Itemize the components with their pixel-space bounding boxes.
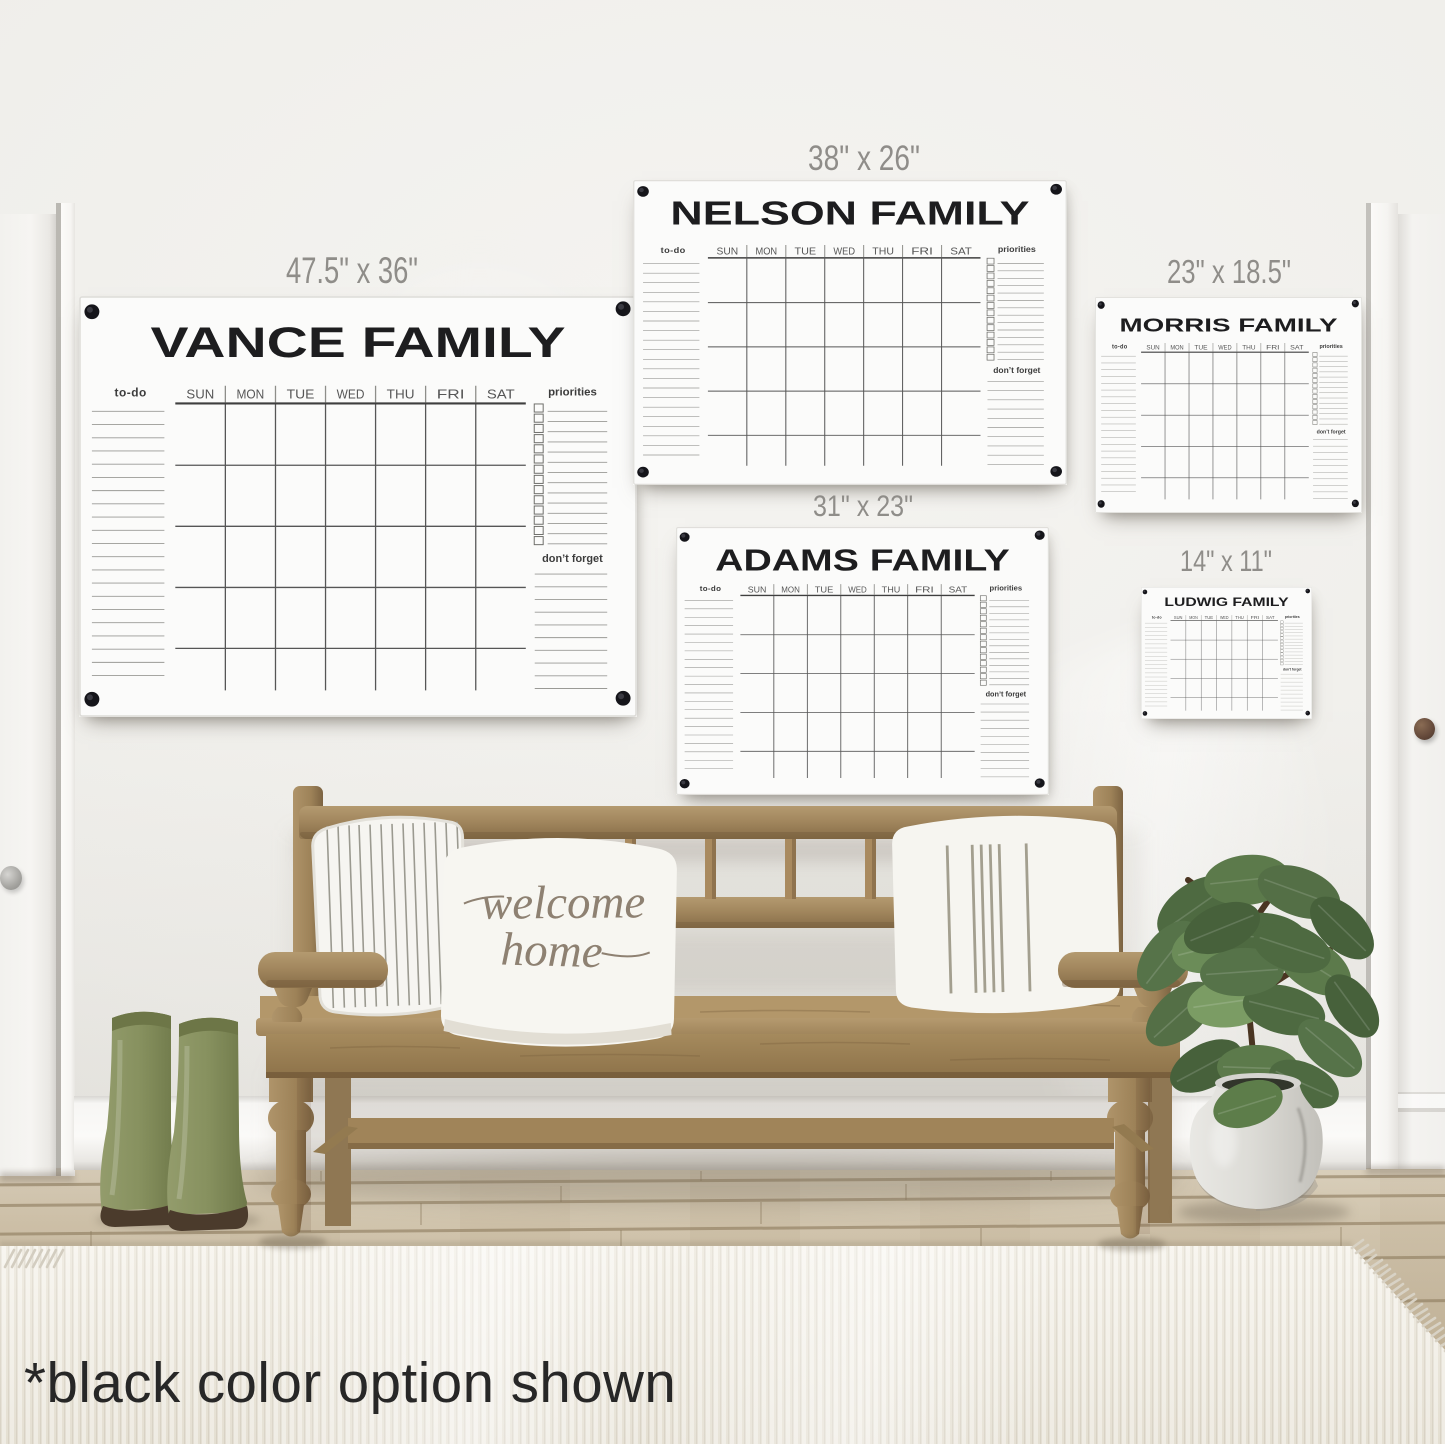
svg-text:welcome: welcome	[481, 876, 646, 929]
svg-text:home: home	[500, 924, 603, 979]
